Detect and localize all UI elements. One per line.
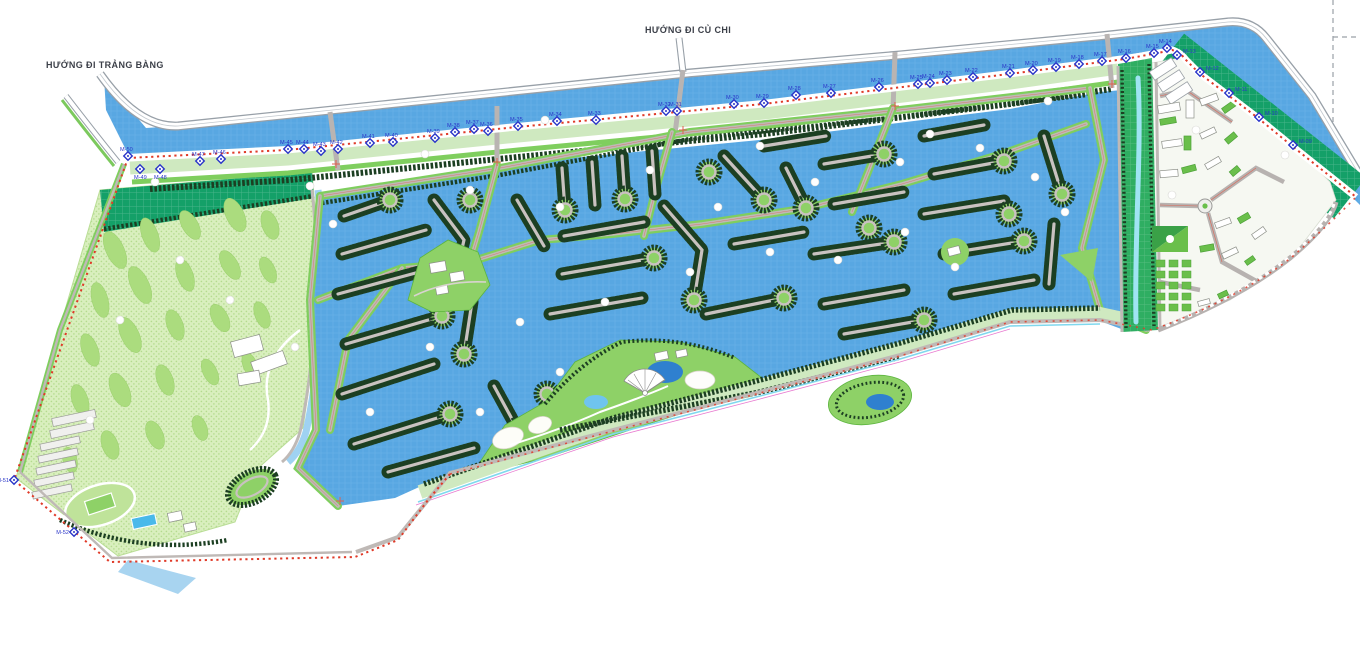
- boundary-marker-label: M-36: [480, 122, 493, 128]
- boundary-marker-label: M-14: [1159, 39, 1172, 45]
- boundary-marker-label: M-33: [588, 111, 601, 117]
- boundary-marker-label: M-09: [1299, 139, 1312, 145]
- boundary-marker-label: M-23: [939, 71, 952, 77]
- small-green-island: [941, 238, 969, 266]
- boundary-marker-label: M-18: [1071, 55, 1084, 61]
- boundary-marker-label: M-46: [213, 150, 226, 156]
- boundary-marker-label: M-39: [427, 129, 440, 135]
- boundary-marker-label: M-22: [965, 68, 978, 74]
- boundary-marker-label: M-35: [510, 117, 523, 123]
- boundary-marker: M-52: [56, 528, 78, 536]
- boundary-marker-label: M-24: [922, 74, 935, 80]
- boundary-marker-label: M-49: [134, 175, 147, 181]
- master-plan-map[interactable]: M-52M-51M-50M-49M-48M-47M-46M-45M-44M-43…: [0, 0, 1360, 660]
- boundary-marker-label: M-44: [296, 140, 309, 146]
- master-plan-page: M-52M-51M-50M-49M-48M-47M-46M-45M-44M-43…: [0, 0, 1360, 660]
- boundary-marker-label: M-17: [1094, 52, 1107, 58]
- park-pond: [584, 395, 608, 409]
- school-building: [1152, 226, 1188, 252]
- boundary-marker-label: M-29: [756, 94, 769, 100]
- boundary-marker-label: M-43: [313, 142, 326, 148]
- label-direction-trang-bang: HƯỚNG ĐI TRẢNG BÀNG: [46, 59, 164, 70]
- boundary-marker-label: M-11: [1235, 87, 1247, 93]
- boundary-marker-label: M-10: [1265, 111, 1278, 117]
- boundary-marker-label: M-25: [910, 75, 923, 81]
- boundary-marker-label: M-34: [549, 112, 562, 118]
- boundary-marker-label: M-42: [330, 140, 343, 146]
- park-plaza: [685, 371, 715, 389]
- boundary-marker-label: M-45: [280, 140, 293, 146]
- boundary-marker-label: M-27: [823, 84, 836, 90]
- boundary-marker-label: M-21: [1002, 64, 1015, 70]
- boundary-marker-label: M-51: [0, 478, 9, 484]
- boundary-marker-label: M-40: [385, 133, 398, 139]
- boundary-marker-label: M-41: [362, 134, 375, 140]
- boundary-marker-label: M-26: [871, 78, 884, 84]
- boundary-marker-label: M-52: [56, 530, 69, 536]
- boundary-marker-label: M-37: [466, 120, 479, 126]
- boundary-marker-label: M-19: [1048, 58, 1061, 64]
- boundary-marker-label: M-38: [447, 123, 460, 129]
- boundary-marker-label: M-16: [1118, 49, 1131, 55]
- boundary-marker-label: M-48: [154, 175, 167, 181]
- boundary-marker-label: M-47: [192, 152, 205, 158]
- boundary-marker-label: M-31: [669, 102, 682, 108]
- boundary-marker-label: M-50: [120, 147, 133, 153]
- boundary-marker-label: M-28: [788, 86, 801, 92]
- boundary-marker-label: M-30: [726, 95, 739, 101]
- boundary-marker-label: M-13: [1183, 49, 1196, 55]
- boundary-marker-label: M-12: [1206, 66, 1219, 72]
- label-direction-cu-chi: HƯỚNG ĐI CỦ CHI: [645, 24, 731, 35]
- boundary-marker-label: M-15: [1146, 44, 1159, 50]
- boundary-marker-label: M-20: [1025, 61, 1038, 67]
